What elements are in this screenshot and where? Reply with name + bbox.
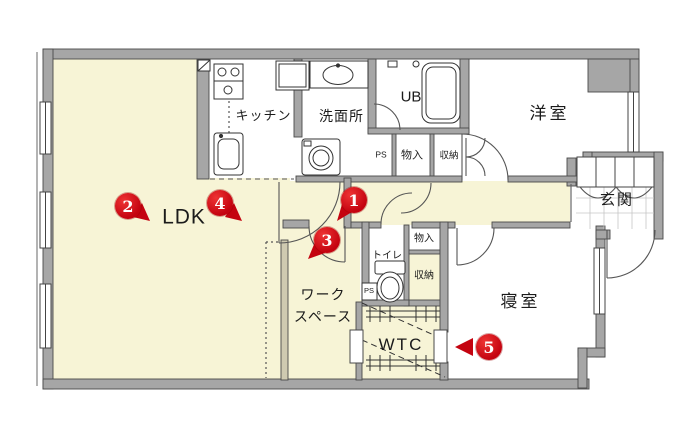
label-storage-upper: 物入	[401, 147, 423, 164]
floor-plan-drawing	[0, 0, 687, 434]
label-closet-hall: 収納	[414, 268, 434, 284]
label-washroom: 洗面所	[318, 106, 364, 128]
marker-4: 4	[207, 190, 233, 216]
marker-5: 5	[476, 334, 502, 360]
marker-3: 3	[314, 227, 340, 253]
marker-1: 1	[341, 187, 367, 213]
label-ps-upper: PS	[375, 148, 386, 161]
label-entrance: 玄関	[598, 188, 634, 211]
floor-fills	[52, 59, 570, 380]
label-wtc: WTC	[379, 332, 424, 358]
label-closet-upper: 収納	[439, 150, 458, 165]
floor-plan: LDK キッチン 洗面所 UB 洋室 玄関 トイレ ワーク スペース WTC 寝…	[0, 0, 687, 434]
label-ldk: LDK	[162, 202, 206, 235]
marker-2: 2	[115, 193, 141, 219]
label-bedroom: 寝室	[498, 289, 541, 315]
label-workspace: ワーク スペース	[294, 284, 352, 327]
label-unit-bath: UB	[401, 85, 422, 108]
label-western-room: 洋室	[527, 101, 570, 127]
label-ps-toilet: PS	[364, 285, 374, 297]
label-toilet: トイレ	[372, 248, 402, 264]
bath-fixtures	[388, 61, 460, 123]
label-storage-hall: 物入	[414, 231, 434, 247]
label-kitchen: キッチン	[234, 106, 291, 126]
